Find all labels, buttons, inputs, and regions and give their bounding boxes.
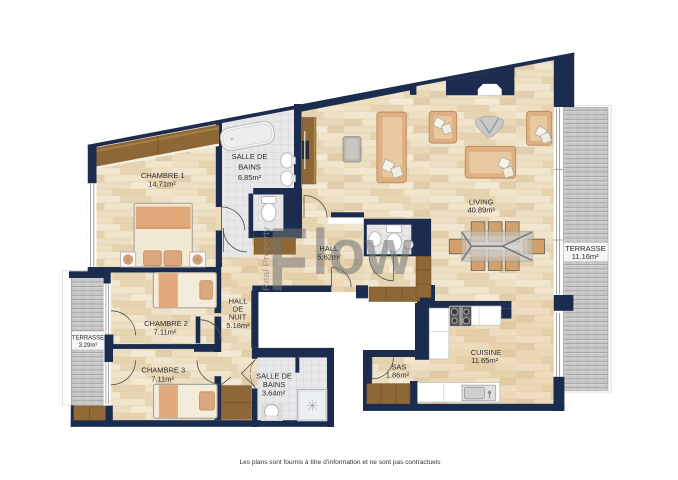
svg-text:6.85m²: 6.85m²	[238, 173, 262, 182]
svg-text:7.11m²: 7.11m²	[154, 327, 177, 336]
svg-text:Real Property: Real Property	[261, 226, 271, 291]
svg-text:F: F	[268, 211, 308, 311]
svg-text:7.11m²: 7.11m²	[151, 374, 174, 383]
svg-text:SALLE DE: SALLE DE	[232, 152, 268, 161]
svg-text:3.64m²: 3.64m²	[262, 389, 286, 398]
svg-text:14.71m²: 14.71m²	[148, 179, 176, 188]
svg-text:3.29m²: 3.29m²	[79, 343, 98, 349]
svg-text:5.62m²: 5.62m²	[317, 252, 341, 261]
svg-text:11.65m²: 11.65m²	[471, 356, 498, 365]
svg-text:Les plans sont fournis à titre: Les plans sont fournis à titre d’informa…	[240, 459, 442, 466]
svg-text:1.86m²: 1.86m²	[386, 371, 410, 380]
svg-text:11.16m²: 11.16m²	[572, 252, 599, 261]
svg-text:TERRASSE: TERRASSE	[72, 336, 104, 342]
svg-text:CHAMBRE 3: CHAMBRE 3	[141, 366, 185, 375]
svg-text:5.18m²: 5.18m²	[226, 321, 250, 330]
svg-text:BAINS: BAINS	[238, 163, 261, 172]
svg-text:BAINS: BAINS	[263, 380, 286, 389]
svg-text:40.89m²: 40.89m²	[467, 205, 495, 214]
